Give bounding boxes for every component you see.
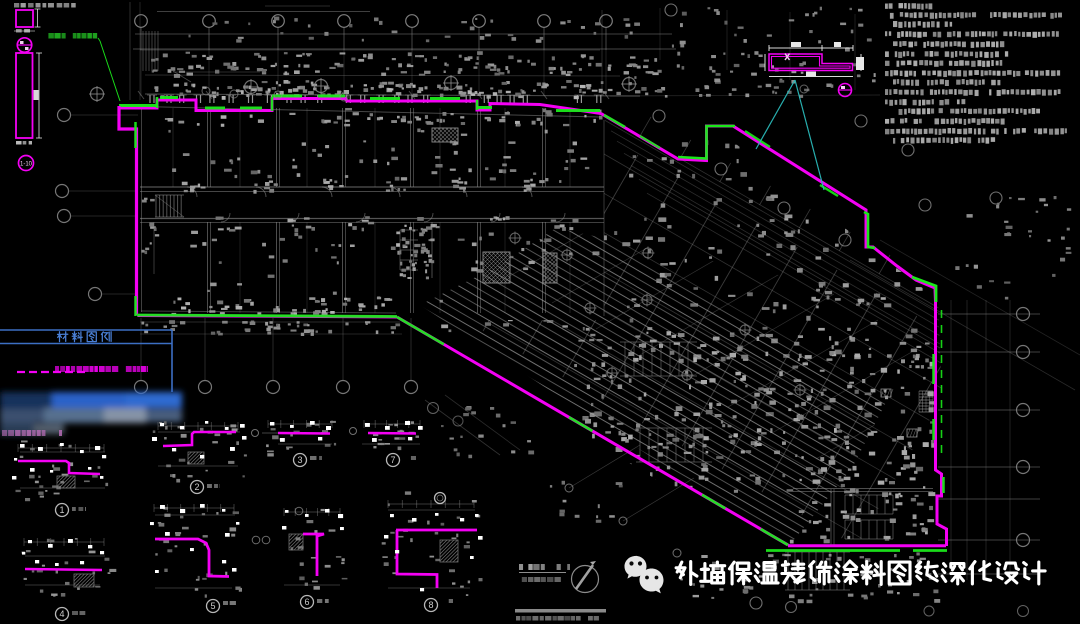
svg-text:1-10: 1-10 xyxy=(20,162,33,168)
svg-text:1: 1 xyxy=(59,505,64,515)
svg-text:2: 2 xyxy=(194,482,199,492)
svg-text:4: 4 xyxy=(59,609,64,619)
svg-text:3: 3 xyxy=(297,455,302,465)
svg-text:7: 7 xyxy=(390,455,395,465)
svg-text:5: 5 xyxy=(210,601,215,611)
svg-text:8: 8 xyxy=(428,600,433,610)
svg-text:6: 6 xyxy=(304,597,309,607)
